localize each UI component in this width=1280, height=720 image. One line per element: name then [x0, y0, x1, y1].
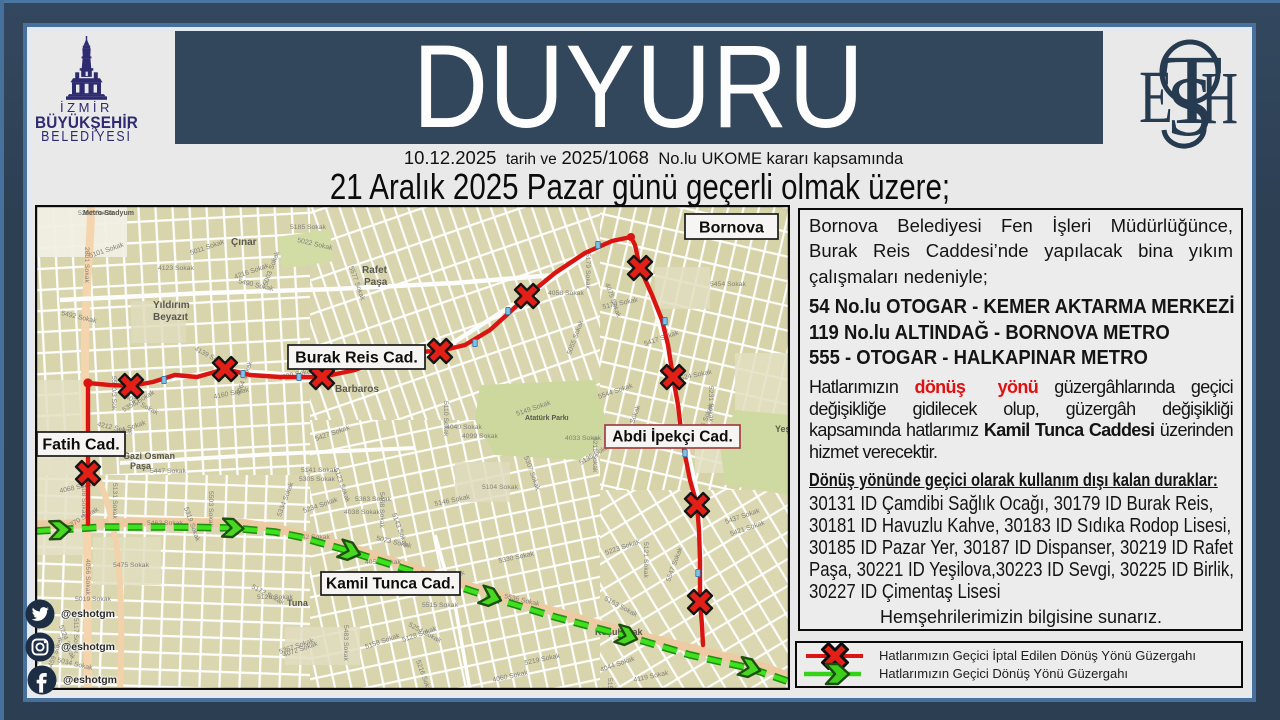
svg-text:5454 Sokak: 5454 Sokak — [710, 281, 747, 288]
svg-text:5131 Sokak: 5131 Sokak — [111, 483, 118, 520]
svg-text:5447 Sokak: 5447 Sokak — [150, 468, 187, 475]
svg-text:4033 Sokak: 4033 Sokak — [565, 435, 602, 442]
svg-text:5503 Sokak: 5503 Sokak — [207, 491, 214, 528]
svg-text:Rafet: Rafet — [362, 265, 388, 276]
svg-text:4099 Sokak: 4099 Sokak — [462, 433, 499, 440]
svg-text:4058 Sokak: 4058 Sokak — [548, 290, 585, 297]
svg-text:Barbaros: Barbaros — [335, 384, 379, 395]
svg-text:Paşa: Paşa — [130, 461, 152, 471]
svg-text:5211 Sokak: 5211 Sokak — [591, 437, 598, 473]
svg-text:Atatürk Parkı: Atatürk Parkı — [525, 415, 569, 422]
svg-text:4056 Sokak: 4056 Sokak — [84, 559, 91, 596]
svg-text:Tuna: Tuna — [287, 598, 309, 608]
svg-text:5483 Sokak: 5483 Sokak — [342, 625, 349, 662]
svg-text:Paşa: Paşa — [364, 277, 388, 288]
svg-text:5110 Sokak: 5110 Sokak — [442, 401, 449, 437]
svg-text:S: S — [1166, 58, 1214, 150]
svg-text:2801 Sokak: 2801 Sokak — [83, 247, 90, 284]
svg-text:Bornova: Bornova — [699, 220, 764, 237]
svg-text:Gazi Osman: Gazi Osman — [123, 451, 175, 461]
svg-text:Beyazıt: Beyazıt — [153, 312, 189, 323]
svg-text:5121 Sokak: 5121 Sokak — [642, 542, 649, 579]
svg-text:5500/3 Sok: 5500/3 Sok — [110, 376, 117, 411]
svg-text:4040 Sokak: 4040 Sokak — [446, 424, 483, 431]
svg-text:Abdi İpekçi Cad.: Abdi İpekçi Cad. — [612, 429, 733, 446]
svg-text:Yıldırım: Yıldırım — [153, 300, 190, 311]
svg-text:5305 Sokak: 5305 Sokak — [299, 476, 336, 483]
svg-text:Fatih Cad.: Fatih Cad. — [42, 437, 119, 454]
svg-text:5515 Sokak: 5515 Sokak — [422, 602, 459, 609]
svg-text:4038 Sokak: 4038 Sokak — [344, 509, 381, 516]
svg-text:Yeşi: Yeşi — [775, 424, 790, 434]
svg-text:5104 Sokak: 5104 Sokak — [482, 484, 519, 491]
svg-text:Kamil Tunca Cad.: Kamil Tunca Cad. — [326, 576, 455, 593]
svg-text:5363 Sokak: 5363 Sokak — [355, 496, 392, 503]
svg-text:5179 Sokak: 5179 Sokak — [584, 253, 591, 290]
svg-text:Burak Reis Cad.: Burak Reis Cad. — [295, 350, 418, 367]
svg-text:5231 Sokak: 5231 Sokak — [707, 386, 714, 423]
svg-text:5141 Sokak: 5141 Sokak — [301, 467, 338, 474]
svg-text:5185 Sokak: 5185 Sokak — [290, 224, 327, 231]
svg-text:4123 Sokak: 4123 Sokak — [158, 265, 195, 272]
svg-text:5475 Sokak: 5475 Sokak — [113, 562, 150, 569]
svg-text:Metro-Stadyum: Metro-Stadyum — [83, 210, 134, 217]
svg-text:Çınar: Çınar — [231, 237, 257, 248]
